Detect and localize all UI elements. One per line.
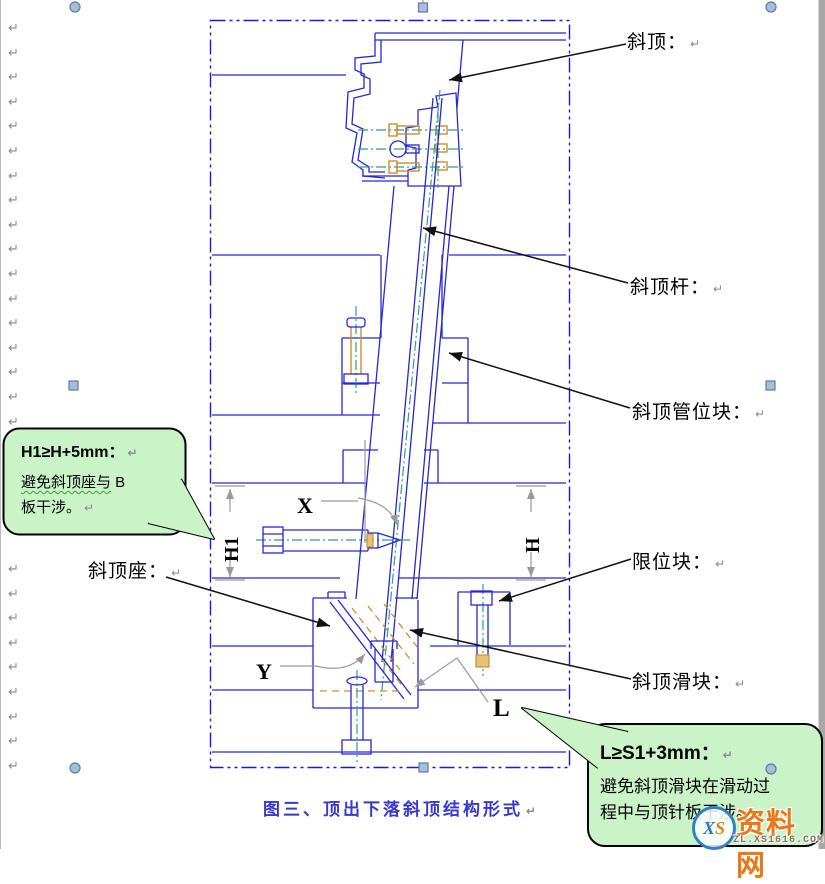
handle-top-center[interactable]	[419, 3, 428, 12]
document-page: ↵↵↵↵↵↵↵↵↵↵↵↵↵↵↵↵↵↵↵↵↵↵↵↵↵↵	[0, 0, 825, 849]
watermark-logo-icon: XS	[692, 806, 736, 850]
selection-handles	[0, 0, 825, 849]
handle-top-right[interactable]	[766, 2, 776, 12]
handle-mid-right[interactable]	[766, 381, 775, 390]
watermark: XS 资料网 ZL.XS1616.COM	[678, 798, 825, 849]
handle-mid-left[interactable]	[69, 381, 78, 390]
handle-top-left[interactable]	[70, 2, 80, 12]
handle-bottom-right[interactable]	[766, 764, 776, 774]
watermark-domain: ZL.XS1616.COM	[733, 835, 824, 846]
handle-bottom-left[interactable]	[70, 763, 80, 773]
handle-bottom-center[interactable]	[419, 763, 428, 772]
